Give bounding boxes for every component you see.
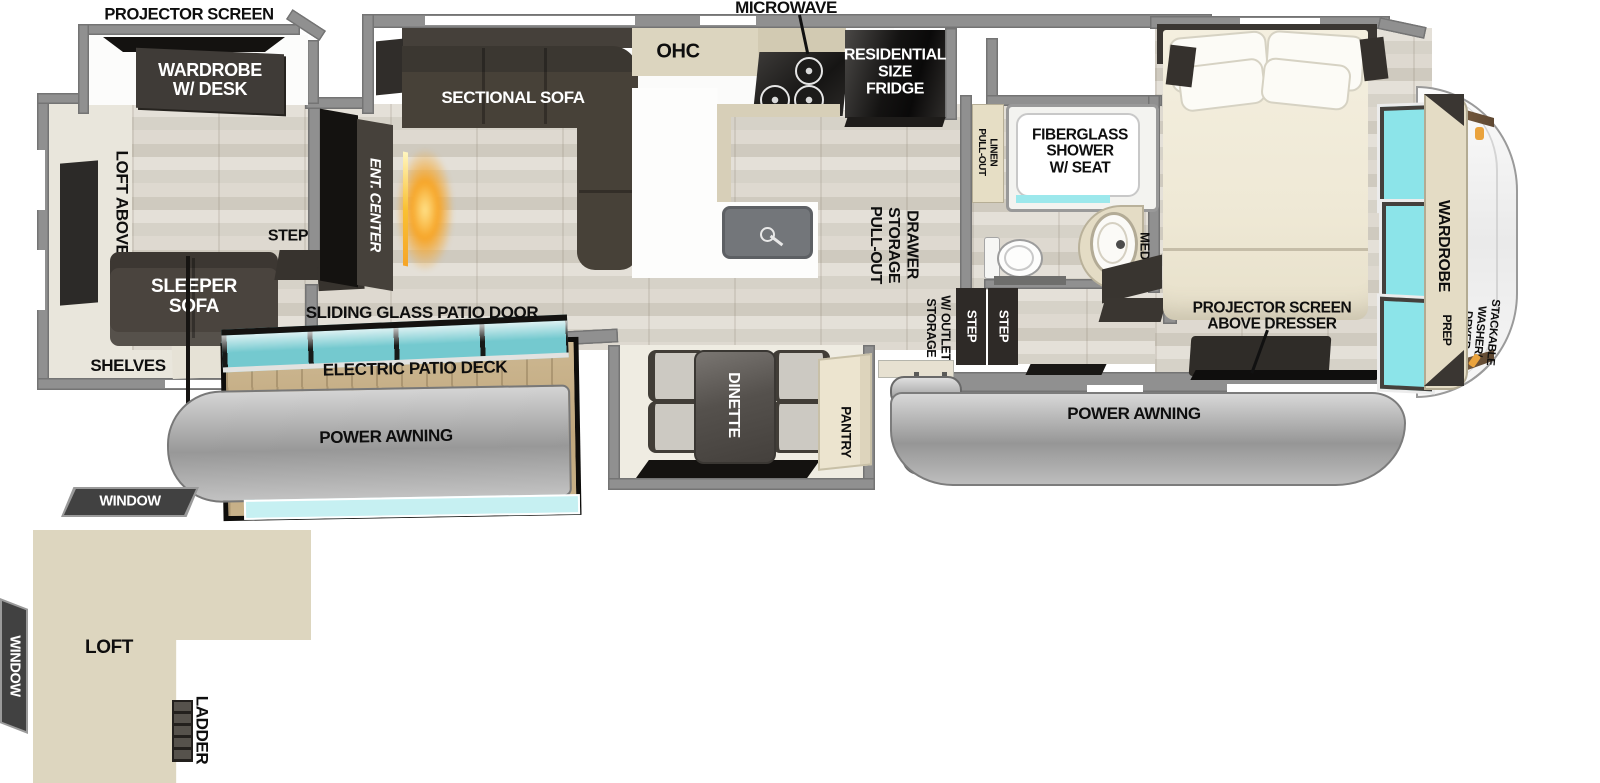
ent-center-tv bbox=[320, 109, 358, 288]
pillow-4 bbox=[1260, 57, 1352, 112]
rear-left-window-2 bbox=[36, 250, 45, 310]
sofa-seam-2 bbox=[544, 48, 547, 124]
sofa-back-band bbox=[402, 28, 632, 48]
wardrobe-desk-label: WARDROBE W/ DESK bbox=[158, 61, 262, 99]
pullout-storage-drawer-label: PULL-OUT STORAGE DRAWER bbox=[866, 206, 921, 284]
sofa-seam-3 bbox=[579, 190, 637, 193]
pullout-linen-label: PULL-OUT LINEN bbox=[976, 128, 999, 175]
power-awning-right-label: POWER AWNING bbox=[1067, 405, 1200, 423]
sectional-sofa-headrest bbox=[402, 46, 638, 72]
rear-room-left-wall bbox=[37, 93, 49, 390]
kitchen-step-wall bbox=[986, 38, 998, 100]
ohc-label: OHC bbox=[656, 41, 699, 62]
rear-slide-top-wall bbox=[78, 24, 300, 35]
med-label: MED bbox=[1137, 232, 1152, 260]
top-wall-window-2 bbox=[700, 16, 756, 25]
sleeper-sofa-label: SLEEPER SOFA bbox=[151, 277, 237, 317]
shower-glass bbox=[1016, 195, 1110, 203]
shelves-label: SHELVES bbox=[90, 357, 165, 375]
window-top-label: WINDOW bbox=[99, 494, 160, 509]
nightstand-right bbox=[1360, 37, 1389, 82]
rear-slide-right-wall bbox=[307, 40, 319, 104]
dresser-label: PROJECTOR SCREEN ABOVE DRESSER bbox=[1193, 301, 1352, 334]
ent-center-label: ENT. CENTER bbox=[366, 157, 383, 254]
toilet-seat bbox=[1004, 245, 1034, 271]
shower-label: FIBERGLASS SHOWER W/ SEAT bbox=[1032, 127, 1128, 176]
sliding-door-label: SLIDING GLASS PATIO DOOR bbox=[306, 304, 539, 322]
bedroom-doorstep bbox=[1099, 298, 1168, 322]
counter-trim-v bbox=[717, 104, 731, 202]
cap-orange-marker bbox=[1475, 127, 1484, 140]
step-a-label: STEP bbox=[964, 310, 979, 342]
bed-fold-line bbox=[1163, 248, 1368, 251]
rv-floorplan: WARDROBE W/ DESK LOFT ABOVE SLEEPER SOFA… bbox=[0, 0, 1600, 783]
fridge-right-wall bbox=[945, 28, 957, 120]
bath-faucet bbox=[1116, 240, 1125, 249]
power-awning-left-label: POWER AWNING bbox=[319, 427, 453, 447]
ladder-label: LADDER bbox=[192, 696, 211, 764]
wardrobe-label: WARDROBE bbox=[1434, 200, 1452, 292]
sofa-seam-1 bbox=[482, 48, 485, 124]
rear-left-window-1 bbox=[36, 150, 45, 210]
projector-screen-rear-label: PROJECTOR SCREEN bbox=[104, 6, 273, 23]
burner-1 bbox=[795, 57, 823, 85]
fridge-base bbox=[844, 117, 945, 127]
step-rear-label: STEP bbox=[268, 229, 308, 246]
prep-label: PREP bbox=[1439, 314, 1453, 345]
dinette-label: DINETTE bbox=[724, 372, 742, 438]
fridge-label: RESIDENTIAL SIZE FRIDGE bbox=[844, 48, 946, 99]
fireplace-flame bbox=[403, 152, 408, 267]
dresser-screen-strip bbox=[1190, 370, 1381, 380]
window-left-label: WINDOW bbox=[6, 635, 23, 696]
pantry-label: PANTRY bbox=[838, 406, 853, 458]
toilet-mat bbox=[994, 276, 1066, 285]
step-b-label: STEP bbox=[996, 310, 1011, 342]
hall-screen-strip bbox=[1025, 364, 1106, 375]
sectional-sofa-label: SECTIONAL SOFA bbox=[441, 89, 584, 107]
nightstand-left bbox=[1166, 45, 1197, 88]
loft-above-label: LOFT ABOVE bbox=[112, 151, 131, 256]
sofa-slide-left-wall bbox=[362, 14, 374, 114]
electric-patio-deck-label: ELECTRIC PATIO DECK bbox=[323, 358, 508, 379]
storage-outlet-label: STORAGE W/ OUTLET bbox=[924, 295, 953, 360]
dinette-bottom-sill bbox=[652, 490, 820, 497]
dinette-bottom-wall bbox=[608, 478, 875, 490]
top-wall-window-1 bbox=[425, 16, 635, 25]
rear-bottom-window bbox=[165, 380, 225, 388]
counter-trim-h bbox=[717, 104, 840, 117]
sofa-slide-window bbox=[376, 39, 403, 96]
rear-tv-panel bbox=[60, 160, 98, 305]
ladder bbox=[172, 700, 193, 762]
rear-slide-left-wall bbox=[78, 24, 89, 114]
loft-label: LOFT bbox=[85, 638, 133, 658]
dinette-left-wall bbox=[608, 345, 620, 490]
microwave-label: MICROWAVE bbox=[735, 0, 837, 17]
